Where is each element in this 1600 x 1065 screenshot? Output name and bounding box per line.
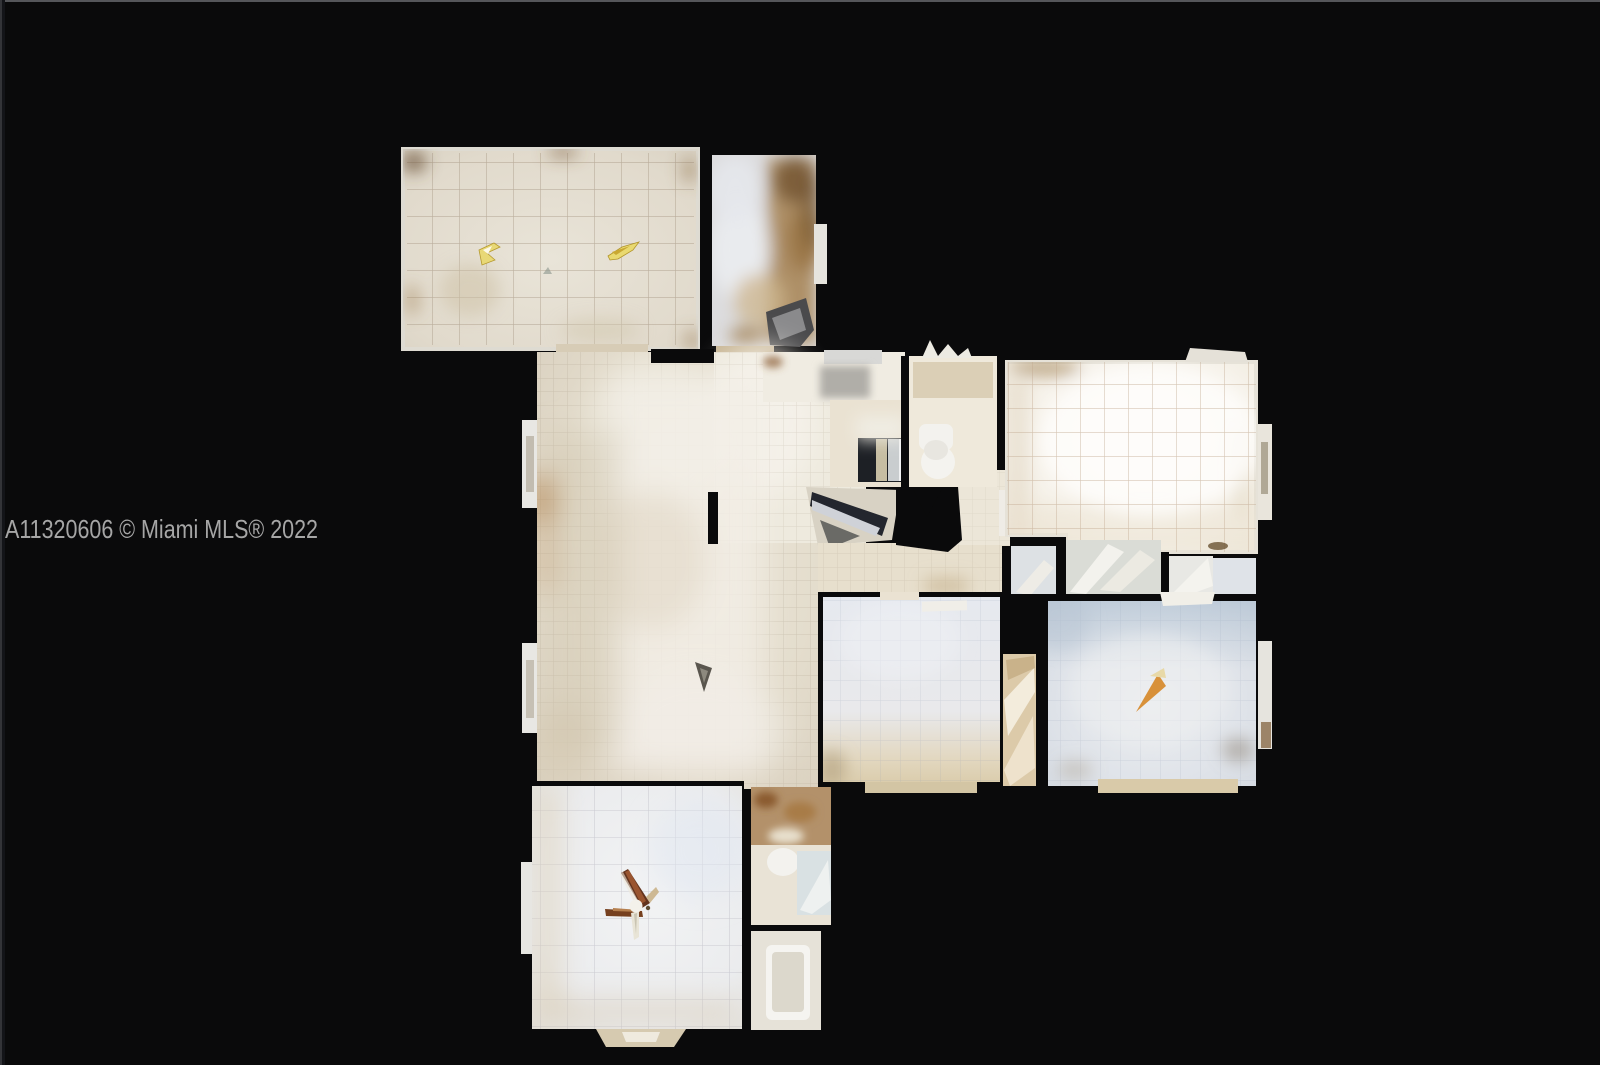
svg-text:A11320606 © Miami MLS® 2022: A11320606 © Miami MLS® 2022	[5, 514, 318, 544]
